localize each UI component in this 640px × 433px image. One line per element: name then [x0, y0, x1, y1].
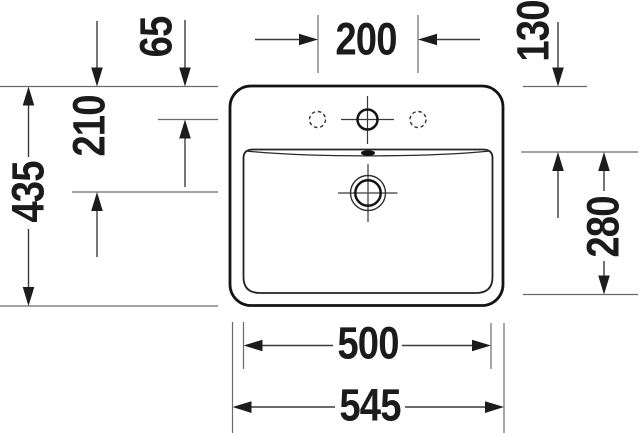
dim-label-tap-spacing: 200: [335, 17, 396, 62]
dim-label-basin-width: 500: [337, 321, 398, 366]
dim-label-overall-depth: 435: [6, 161, 51, 222]
dim-label-overall-width: 545: [339, 383, 400, 428]
washbasin-dimension-drawing: [0, 0, 640, 433]
dim-label-basin-depth: 280: [581, 196, 626, 257]
washbasin-body: [230, 86, 503, 306]
dim-label-edge-to-drain: 210: [67, 95, 112, 156]
overflow-slot: [361, 150, 375, 156]
dim-label-edge-to-basin: 130: [511, 0, 556, 61]
technical-drawing-canvas: 200 65 210 435 130 280 500 545: [0, 0, 640, 433]
dim-label-edge-to-tap: 65: [134, 17, 179, 58]
